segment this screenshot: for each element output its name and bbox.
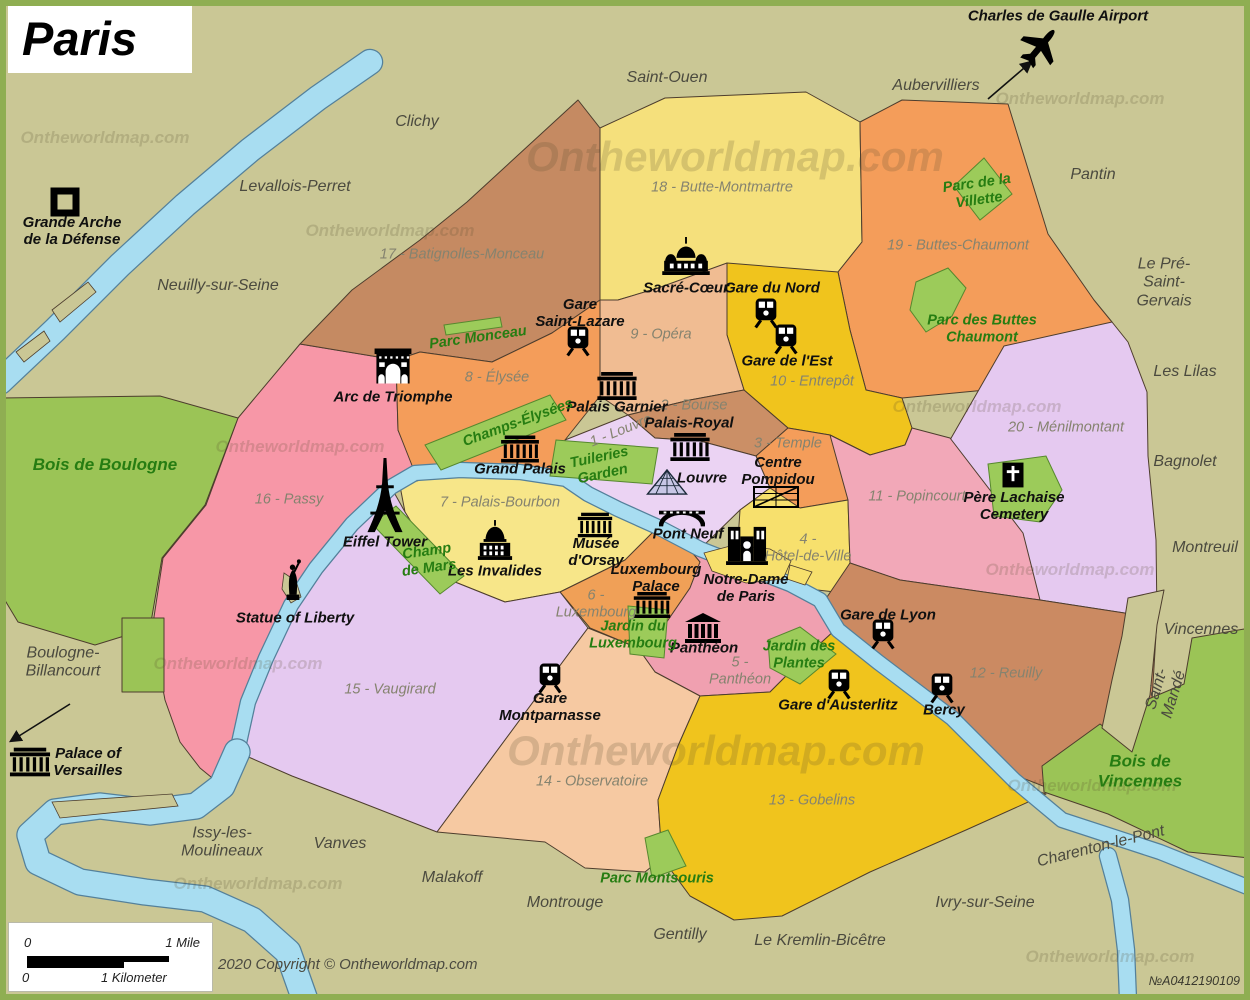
- 10-entrep-t-label: 10 - Entrepôt: [770, 374, 854, 391]
- arc-de-triomphe-label: Arc de Triomphe: [334, 388, 453, 405]
- grande-arche-de-la-d-fense-label: Grande Arche de la Défense: [23, 214, 122, 249]
- scale-km-label: 1 Kilometer: [101, 970, 167, 985]
- 13-gobelins-label: 13 - Gobelins: [769, 793, 855, 810]
- issy-les-moulineaux-label: Issy-les- Moulineaux: [181, 825, 263, 862]
- 16-passy-label: 16 - Passy: [255, 492, 324, 509]
- 18-butte-montmartre-label: 18 - Butte-Montmartre: [651, 180, 793, 197]
- 11-popincourt-label: 11 - Popincourt: [868, 489, 965, 506]
- 8-lys-e-label: 8 - Élysée: [465, 370, 529, 387]
- 14-observatoire-label: 14 - Observatoire: [536, 774, 648, 791]
- watermark: Ontheworldmap.com: [215, 437, 384, 457]
- luxembourg-palace-label: Luxembourg Palace: [611, 561, 702, 596]
- palace-of-versailles-label: Palace of Versailles: [53, 745, 123, 780]
- gare-du-nord-label: Gare du Nord: [724, 279, 820, 296]
- le-kremlin-bic-tre-label: Le Kremlin-Bicêtre: [754, 932, 886, 950]
- watermark: Ontheworldmap.com: [173, 874, 342, 894]
- grand-palais-label: Grand Palais: [474, 460, 566, 477]
- le-pr-saint-gervais-label: Le Pré-Saint-Gervais: [1121, 255, 1207, 310]
- notre-dame-de-paris-label: Notre-Dame de Paris: [703, 571, 788, 606]
- saint-ouen-label: Saint-Ouen: [627, 69, 708, 87]
- panth-on-label: Panthéon: [670, 639, 738, 656]
- jardin-des-plantes-label: Jardin des Plantes: [763, 638, 836, 671]
- gare-de-l-est-label: Gare de l'Est: [741, 352, 832, 369]
- 3-temple-label: 3 - Temple: [754, 436, 822, 453]
- pantin-label: Pantin: [1070, 166, 1115, 184]
- levallois-perret-label: Levallois-Perret: [239, 178, 350, 196]
- watermark: Ontheworldmap.com: [892, 397, 1061, 417]
- vanves-label: Vanves: [314, 835, 367, 853]
- 20-m-nilmontant-label: 20 - Ménilmontant: [1008, 420, 1124, 437]
- parc-montsouris-label: Parc Montsouris: [600, 871, 714, 888]
- 7-palais-bourbon-label: 7 - Palais-Bourbon: [440, 495, 560, 512]
- saint-mand-label: Saint-Mandé: [1136, 646, 1196, 737]
- bercy-label: Bercy: [923, 701, 965, 718]
- bagnolet-label: Bagnolet: [1153, 453, 1216, 471]
- 19-buttes-chaumont-label: 19 - Buttes-Chaumont: [887, 238, 1029, 255]
- aubervilliers-label: Aubervilliers: [892, 77, 979, 95]
- charles-de-gaulle-airport-label: Charles de Gaulle Airport: [968, 7, 1148, 24]
- 12-reuilly-label: 12 - Reuilly: [970, 666, 1043, 683]
- watermark: Ontheworldmap.com: [995, 89, 1164, 109]
- watermark: Ontheworldmap.com: [526, 133, 944, 181]
- sacr-c-ur-label: Sacré-Cœur: [643, 279, 729, 296]
- les-invalides-label: Les Invalides: [448, 562, 542, 579]
- scale-km-zero: 0: [22, 970, 29, 985]
- clichy-label: Clichy: [395, 113, 439, 131]
- gare-montparnasse-label: Gare Montparnasse: [499, 690, 601, 725]
- jardin-du-luxembourg-label: Jardin du Luxembourg: [589, 618, 677, 651]
- montreuil-label: Montreuil: [1172, 539, 1238, 557]
- p-re-lachaise-cemetery-label: Père Lachaise Cemetery: [964, 489, 1065, 524]
- palais-royal-label: Palais-Royal: [644, 414, 733, 431]
- scale-bar: 0 1 Mile 0 1 Kilometer: [8, 922, 213, 992]
- copyright-text: 2020 Copyright © Ontheworldmap.com: [218, 956, 478, 973]
- 5-panth-on-label: 5 - Panthéon: [709, 654, 771, 687]
- montrouge-label: Montrouge: [527, 894, 604, 912]
- scale-km-bar: [27, 962, 124, 968]
- scale-mile-zero: 0: [24, 935, 31, 950]
- bois-de-boulogne-label: Bois de Boulogne: [33, 455, 178, 475]
- statue-of-liberty-label: Statue of Liberty: [236, 609, 354, 626]
- les-lilas-label: Les Lilas: [1153, 363, 1216, 381]
- 15-vaugirard-label: 15 - Vaugirard: [344, 682, 435, 699]
- parc-des-buttes-chaumont-label: Parc des Buttes Chaumont: [927, 312, 1037, 345]
- malakoff-label: Malakoff: [422, 869, 482, 887]
- watermark: Ontheworldmap.com: [20, 128, 189, 148]
- gare-saint-lazare-label: Gare Saint-Lazare: [535, 296, 624, 331]
- scale-mile-label: 1 Mile: [165, 935, 200, 950]
- boulogne-billancourt-label: Boulogne- Billancourt: [26, 645, 101, 682]
- 17-batignolles-monceau-label: 17 - Batignolles-Monceau: [380, 247, 544, 264]
- watermark: Ontheworldmap.com: [507, 727, 925, 775]
- page-title: Paris: [22, 11, 137, 66]
- 9-op-ra-label: 9 - Opéra: [630, 327, 691, 344]
- champs-lys-es-label: Champs-Élysées: [461, 395, 576, 450]
- louvre-label: Louvre: [677, 469, 727, 486]
- title-box: Paris: [8, 4, 192, 73]
- watermark: Ontheworldmap.com: [305, 221, 474, 241]
- 2-bourse-label: 2 - Bourse: [661, 398, 728, 415]
- watermark: Ontheworldmap.com: [1025, 947, 1194, 967]
- tuileries-garden-label: Tuileries Garden: [568, 444, 633, 489]
- watermark: Ontheworldmap.com: [153, 654, 322, 674]
- reference-number: №A0412190109: [1149, 974, 1240, 988]
- label-layer: Ontheworldmap.comOntheworldmap.comOnthew…: [0, 0, 1250, 1000]
- parc-de-la-villette-label: Parc de la Villette: [942, 171, 1014, 214]
- vincennes-label: Vincennes: [1164, 621, 1238, 639]
- paris-map: Ontheworldmap.comOntheworldmap.comOnthew…: [0, 0, 1250, 1000]
- gare-d-austerlitz-label: Gare d'Austerlitz: [778, 696, 897, 713]
- palais-garnier-label: Palais Garnier: [567, 398, 668, 415]
- parc-monceau-label: Parc Monceau: [428, 323, 528, 353]
- 4-h-tel-de-ville-label: 4 - Hôtel-de-Ville: [765, 531, 852, 564]
- watermark: Ontheworldmap.com: [985, 560, 1154, 580]
- gentilly-label: Gentilly: [653, 926, 706, 944]
- neuilly-sur-seine-label: Neuilly-sur-Seine: [157, 277, 279, 295]
- bois-de-vincennes-label: Bois de Vincennes: [1085, 751, 1195, 790]
- ivry-sur-seine-label: Ivry-sur-Seine: [935, 894, 1034, 912]
- charenton-le-pont-label: Charenton-le-Pont: [1035, 822, 1166, 871]
- pont-neuf-label: Pont Neuf: [653, 525, 724, 542]
- gare-de-lyon-label: Gare de Lyon: [840, 606, 936, 623]
- centre-pompidou-label: Centre Pompidou: [741, 454, 814, 489]
